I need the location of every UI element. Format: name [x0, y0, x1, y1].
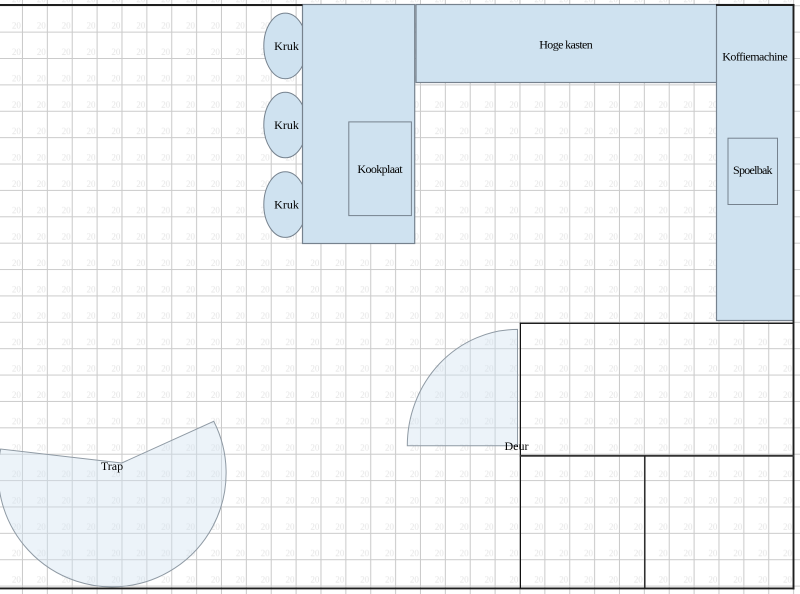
svg-text:Kruk: Kruk [274, 198, 299, 212]
svg-text:Spoelbak: Spoelbak [733, 163, 773, 177]
svg-text:Kookplaat: Kookplaat [357, 162, 403, 176]
svg-text:Trap: Trap [101, 459, 123, 473]
svg-text:Hoge kasten: Hoge kasten [539, 38, 593, 52]
svg-text:Deur: Deur [505, 439, 529, 453]
svg-text:Koffiemachine: Koffiemachine [722, 49, 788, 63]
svg-text:Kruk: Kruk [274, 118, 299, 132]
svg-text:Kruk: Kruk [274, 39, 299, 53]
